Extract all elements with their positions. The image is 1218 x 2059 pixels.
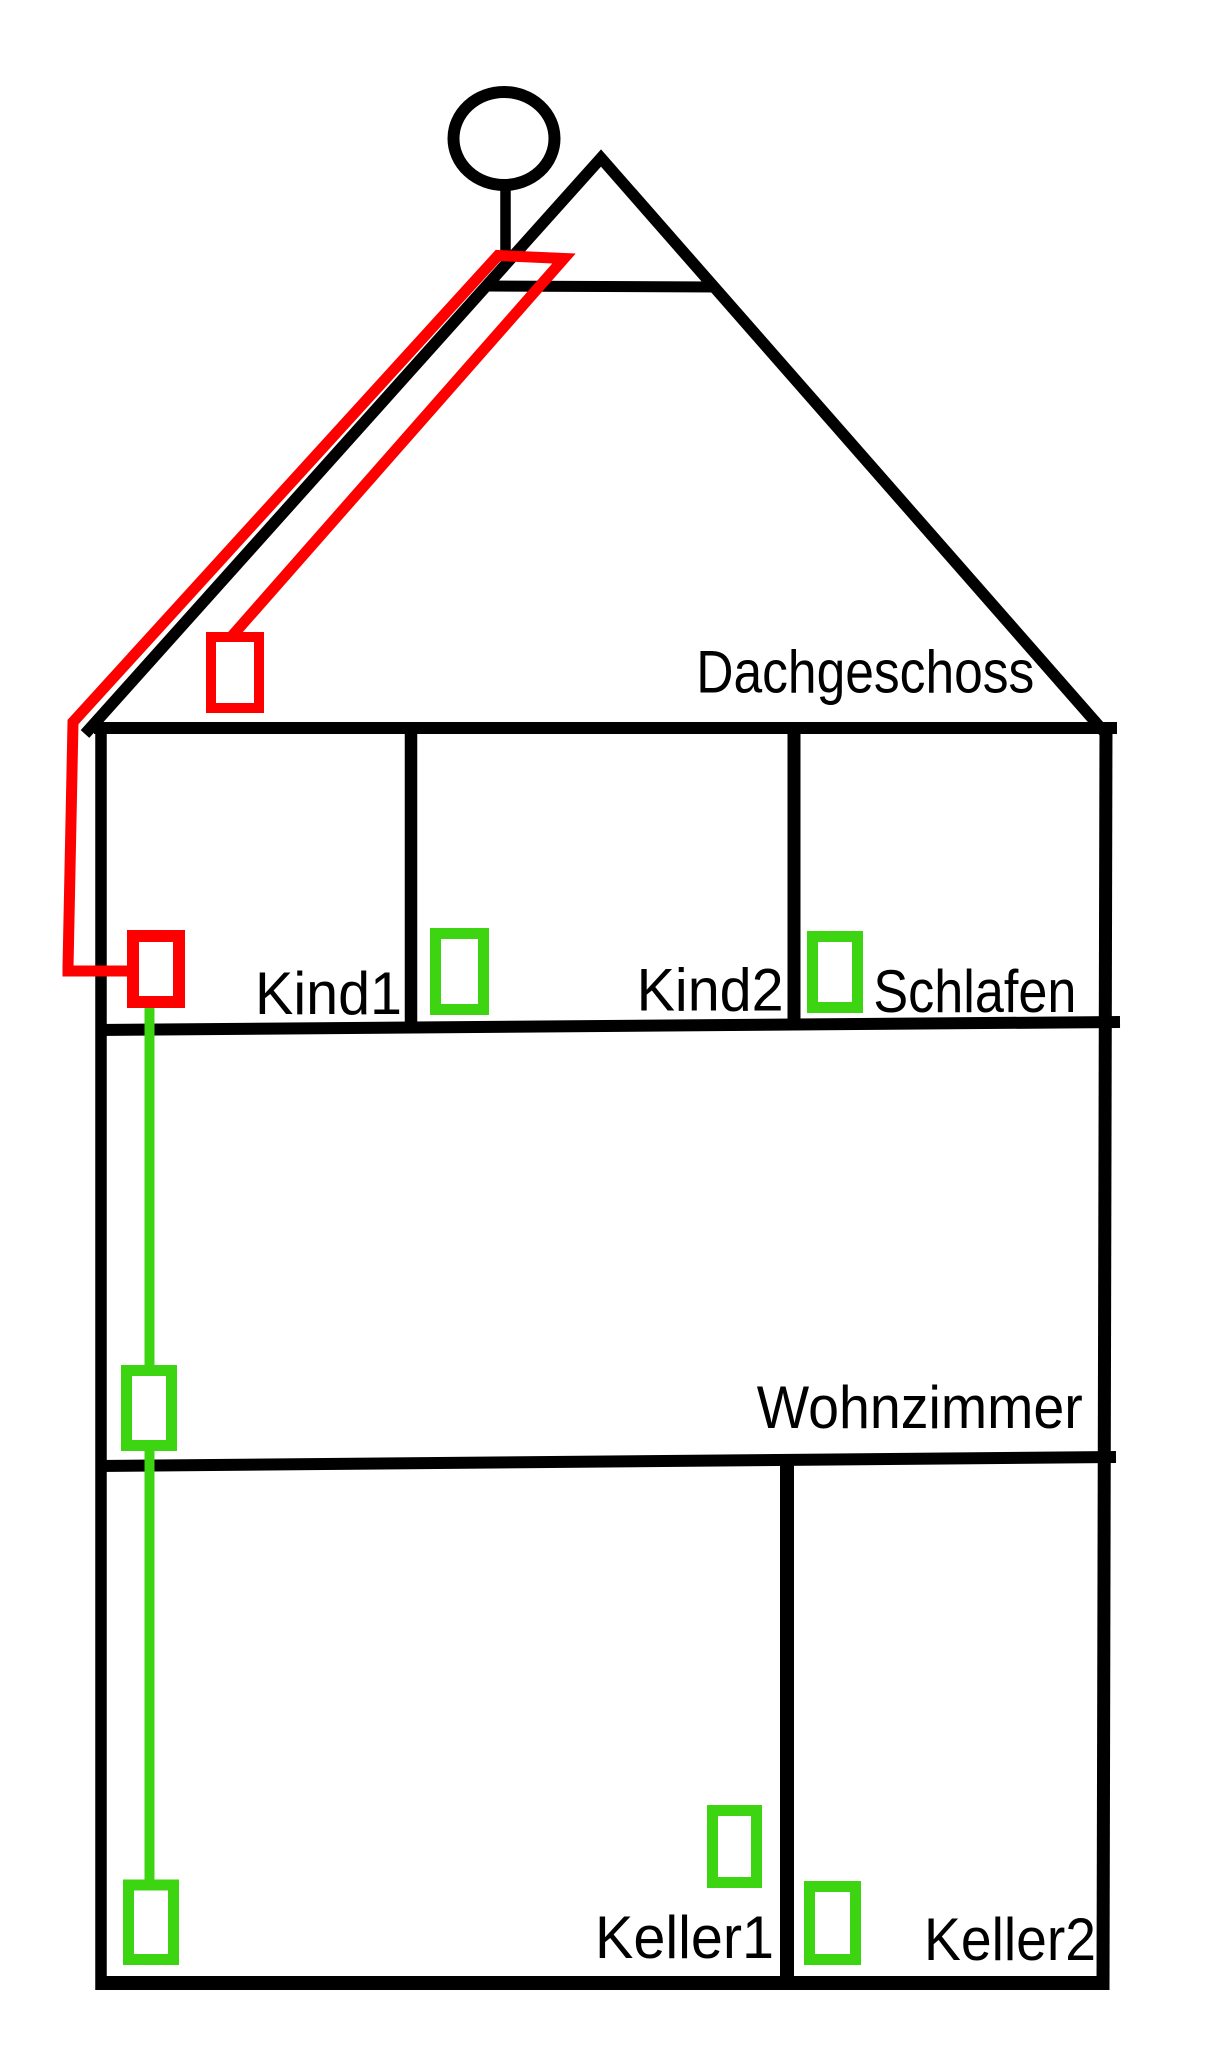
svg-text:Keller1: Keller1 <box>595 1904 774 1971</box>
svg-text:Wohnzimmer: Wohnzimmer <box>757 1374 1083 1441</box>
svg-text:Schlafen: Schlafen <box>873 958 1076 1025</box>
svg-text:Keller2: Keller2 <box>924 1906 1096 1973</box>
svg-text:Kind2: Kind2 <box>637 957 784 1024</box>
svg-text:Dachgeschoss: Dachgeschoss <box>696 639 1034 706</box>
svg-text:Kind1: Kind1 <box>255 960 402 1027</box>
